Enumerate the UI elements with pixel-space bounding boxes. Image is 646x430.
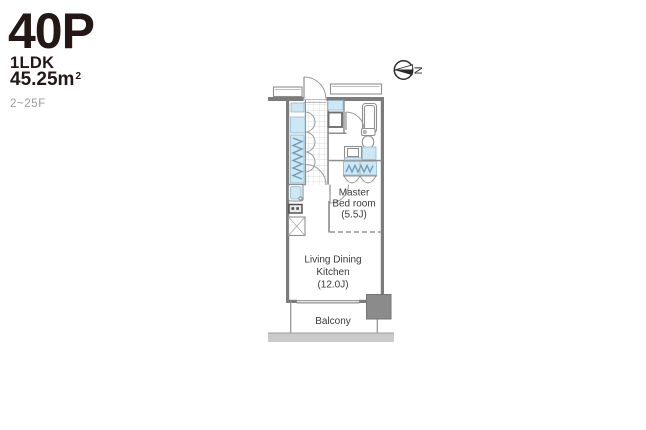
railing-right [331, 84, 382, 94]
balcony-label: Balcony [315, 316, 351, 327]
closet-doors [344, 176, 376, 183]
vanity [345, 147, 362, 161]
floor-plan-page: 40P 1LDK 45.25m2 2~25F [0, 0, 646, 430]
pipe-shaft [289, 217, 306, 236]
ldk-window [297, 301, 360, 303]
balcony-edge [268, 333, 394, 342]
storage-box [329, 113, 343, 128]
toilet [362, 129, 376, 149]
compass-icon: N [394, 61, 423, 79]
closet-hanger [344, 162, 377, 176]
washer-pan [289, 185, 304, 202]
entrance-door [304, 77, 327, 102]
railing-left [274, 87, 303, 97]
bath-door [346, 112, 364, 130]
compass-north-label: N [412, 67, 424, 75]
master-bedroom-size: (5.5J) [341, 210, 367, 221]
washroom-fixture [363, 147, 377, 160]
ldk-label: Living Dining Kitchen (12.0J) [304, 255, 361, 291]
ldk-size: (12.0J) [317, 280, 348, 291]
meter-box [289, 205, 302, 214]
kitchen-sink [291, 117, 306, 133]
pillar [367, 295, 392, 320]
floor-plan-svg: N Master Bed room (5.5J) Living Dining K… [0, 0, 646, 430]
ldk-line1: Living Dining [304, 255, 361, 266]
ldk-line2: Kitchen [316, 267, 349, 278]
master-bedroom-label: Master Bed room (5.5J) [332, 188, 375, 221]
master-bedroom-line1: Master [339, 188, 370, 199]
shoe-cabinet [291, 103, 304, 112]
washroom-window [328, 101, 343, 111]
master-bedroom-line2: Bed room [332, 199, 375, 210]
kitchen-counter [291, 135, 305, 183]
